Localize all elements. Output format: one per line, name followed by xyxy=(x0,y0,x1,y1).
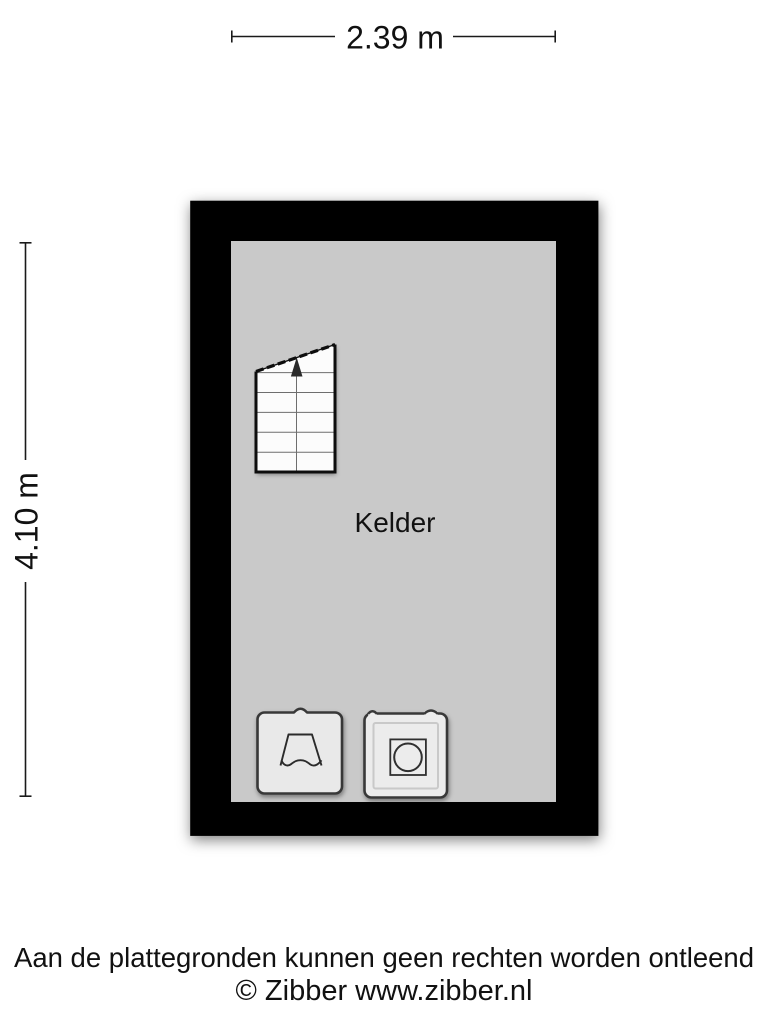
svg-text:4.10 m: 4.10 m xyxy=(9,472,45,570)
svg-text:Kelder: Kelder xyxy=(355,507,436,538)
svg-text:© Zibber www.zibber.nl: © Zibber www.zibber.nl xyxy=(236,975,533,1007)
svg-text:2.39 m: 2.39 m xyxy=(346,20,444,56)
svg-text:Aan de plattegronden kunnen ge: Aan de plattegronden kunnen geen rechten… xyxy=(14,942,754,973)
